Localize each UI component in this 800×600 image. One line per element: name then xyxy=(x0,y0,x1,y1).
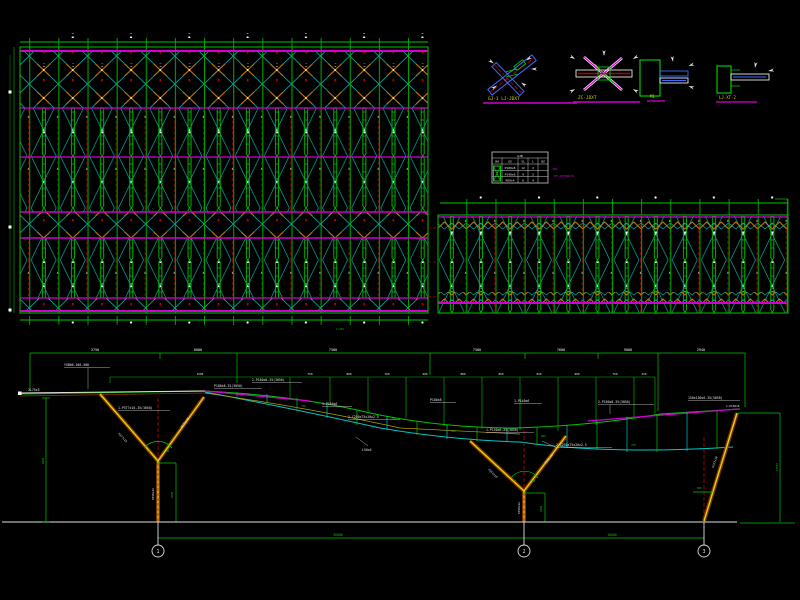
svg-text:760: 760 xyxy=(384,372,389,376)
elevation-view: 3750 8000 7500 7500 7600 9000 2940 1500 xyxy=(2,348,795,557)
inclined-column: 600 P377x10 xyxy=(693,413,737,521)
table-mark-symbol xyxy=(494,166,501,181)
svg-text:2940: 2940 xyxy=(697,348,705,352)
table-cell-0-2: 2 xyxy=(532,166,534,170)
roof-magenta-right xyxy=(588,409,738,421)
v1-angle-left: 60 xyxy=(147,449,151,453)
elev-dim-tier1-labels: 3750 8000 7500 7500 7600 9000 2940 xyxy=(91,348,705,352)
detail-2-title: ZC-JDXT xyxy=(578,95,597,101)
svg-text:750: 750 xyxy=(631,443,636,447)
anno-2: P180x8-35(3050) xyxy=(214,384,243,388)
anno-12: 2-P180x8-35(3050) xyxy=(252,378,285,382)
plan-left-axis xyxy=(9,55,12,313)
svg-text:750: 750 xyxy=(301,404,306,408)
detail-4-title: LJ-XT-2 xyxy=(719,95,736,100)
svg-text:750: 750 xyxy=(612,372,617,376)
grid-bubble-2: 2 xyxy=(522,549,525,555)
detail-3-seat: M1 xyxy=(640,56,695,101)
v2-angle-left: 60 xyxy=(513,479,517,483)
table-cell-2-0: P89x4 xyxy=(505,179,514,183)
svg-text:8000: 8000 xyxy=(194,348,202,352)
anno-5: 1-P140x6 xyxy=(514,399,529,403)
svg-text:800: 800 xyxy=(346,372,351,376)
roof-plan-left: 1:100 xyxy=(9,33,429,331)
svg-text:830: 830 xyxy=(536,372,541,376)
anno-6: 2-P180x8-35(3050) xyxy=(598,400,631,404)
table-header-4: BZ xyxy=(541,160,545,164)
detail-3-title: M1 xyxy=(650,94,655,99)
grid-dim-chain: 36000 18000 xyxy=(158,533,704,542)
rplan-left-centerline-marks xyxy=(428,228,438,297)
schedule-table: GJB BH GG SL L BZ P180x8 12 2 P140x6 9 2… xyxy=(492,152,574,183)
anno-7: 150x150x6-35(5050) xyxy=(688,396,723,400)
v2-dim-text: 2800 xyxy=(539,505,543,512)
table-header-2: SL xyxy=(521,160,525,164)
svg-text:7500: 7500 xyxy=(329,348,337,352)
svg-text:850: 850 xyxy=(498,372,503,376)
svg-text:900: 900 xyxy=(541,434,546,438)
incline-label: P377x10 xyxy=(711,456,718,469)
anno-0: YXB66-166-500 xyxy=(64,363,89,367)
table-cell-2-1: 6 xyxy=(522,179,524,183)
v2-arm-label-left: P351x10 xyxy=(487,468,498,479)
anno-11: P180x8 xyxy=(430,398,442,402)
detail-1-title: GJ-1 LJ-JDXT xyxy=(488,96,520,102)
plan-top-node-dots xyxy=(20,33,428,38)
detail-4-arrows xyxy=(753,62,774,73)
table-cell-0-1: 12 xyxy=(521,166,525,170)
table-cell-0-0: P180x8 xyxy=(505,166,516,170)
anno-4: 2-C250x75x20x2.5 xyxy=(348,415,379,419)
svg-text:420: 420 xyxy=(641,372,646,376)
grid-bubble-3: 3 xyxy=(702,549,705,555)
table-header-3: L xyxy=(532,160,534,164)
note-line-1: JD2 xyxy=(552,167,558,171)
svg-text:9000: 9000 xyxy=(41,457,45,464)
svg-text:900: 900 xyxy=(574,372,579,376)
svg-text:1500: 1500 xyxy=(197,372,204,376)
rplan-drop-ticks xyxy=(440,207,788,215)
roof-bottom-chord xyxy=(205,392,733,450)
v1-angle-right: 60 xyxy=(166,449,170,453)
v2-stem-label: P450x12 xyxy=(517,502,521,514)
v2-arm-label-right: P351x10 xyxy=(544,453,555,465)
svg-text:10500: 10500 xyxy=(775,463,779,471)
anno-1: 2L75x5 xyxy=(28,388,40,392)
table-cell-1-1: 9 xyxy=(522,172,524,176)
v1-stem-label: P450x12 xyxy=(151,488,155,500)
svg-text:880: 880 xyxy=(460,372,465,376)
anno-3: 1-P150x6 xyxy=(322,402,337,406)
elev-dim-tier2-labels: 1500 750 800 760 900 880 850 830 900 750… xyxy=(197,372,647,376)
svg-text:750: 750 xyxy=(307,372,312,376)
v-column-1: 60 60 4500 P377x10 P377x10 P450x12 xyxy=(100,394,204,522)
roof-magenta-left xyxy=(205,391,310,401)
svg-text:3750: 3750 xyxy=(91,348,99,352)
right-height-dim: 10500 xyxy=(738,413,795,523)
note-line-2: PM-XITONGTU xyxy=(554,174,574,178)
plan-scale-note: 1:100 xyxy=(336,327,344,331)
plan-bottom-node-dots xyxy=(20,321,428,326)
anno-9: 2-C250x75x20x2.5 xyxy=(556,443,587,447)
cad-canvas: 1:100 xyxy=(0,0,800,600)
plan-top-dim-ticks xyxy=(20,38,428,47)
span-label-2: 18000 xyxy=(607,533,617,537)
svg-text:7600: 7600 xyxy=(557,348,565,352)
span-label-1: 36000 xyxy=(333,533,343,537)
grid-bubbles xyxy=(152,522,710,557)
svg-text:900: 900 xyxy=(422,372,427,376)
anno-13: 1-P377x10-35(3050) xyxy=(118,406,153,410)
v1-arm-label-left: P377x10 xyxy=(117,432,128,444)
v2-angle-right: 60 xyxy=(532,479,536,483)
table-cell-2-2: 4 xyxy=(532,179,534,183)
svg-text:750: 750 xyxy=(391,417,396,421)
roof-tie-tags: 750 750 900 900 750 xyxy=(301,404,636,447)
elev-annotations: YXB66-166-500 2L75x5 P180x8-35(3050) 1-P… xyxy=(28,363,740,452)
v1-dim-text: 4500 xyxy=(170,491,174,498)
detail-4-end-plate: LJ-XT-2 xyxy=(716,62,774,102)
svg-text:900: 900 xyxy=(451,429,456,433)
grid-bubble-1: 1 xyxy=(156,549,159,555)
svg-text:7500: 7500 xyxy=(473,348,481,352)
detail-3-arrows xyxy=(670,56,694,90)
table-header-0: BH xyxy=(495,160,499,164)
anno-10: L50x4 xyxy=(362,448,372,452)
v-column-2: 60 60 2800 P351x10 P351x10 P450x12 xyxy=(470,430,566,522)
elev-dim-tier1 xyxy=(30,353,745,411)
detail-2-brace-node: ZC-JDXT xyxy=(569,50,640,102)
incline-dim-text: 600 xyxy=(697,486,702,490)
table-cell-1-2: 2 xyxy=(532,172,534,176)
rplan-top-node-dots xyxy=(440,194,788,199)
detail-1-gusset: GJ-1 LJ-JDXT xyxy=(483,55,577,103)
left-height-dim: 9000 xyxy=(41,398,50,522)
table-title: GJB xyxy=(517,154,523,158)
roof-mid-chord xyxy=(205,393,520,434)
anno-14: 1-P150x6-35(3050) xyxy=(486,428,519,432)
svg-text:9000: 9000 xyxy=(624,348,632,352)
table-cell-1-0: P140x6 xyxy=(505,172,516,176)
elev-dim-tier2 xyxy=(110,377,655,431)
roof-plan-right xyxy=(428,194,788,313)
drawing-sheet: 1:100 xyxy=(0,0,800,600)
table-header-1: GG xyxy=(508,160,512,164)
anno-8: 1-P150x6 xyxy=(726,404,740,408)
